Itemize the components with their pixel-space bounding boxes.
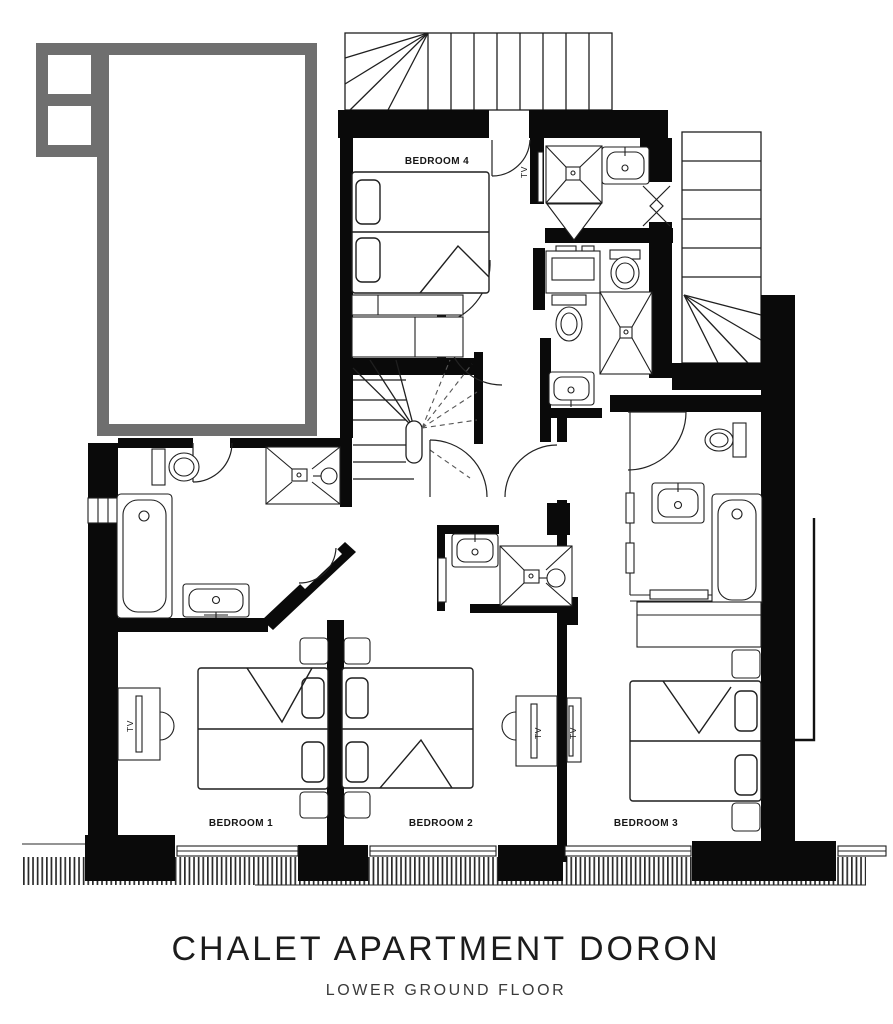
bathtub-icon-bath1 — [117, 494, 172, 618]
tv-label-bedroom2: TV — [533, 727, 543, 739]
tv-label-bedroom1: TV — [125, 720, 135, 732]
wardrobe-icon-bedroom3 — [637, 602, 761, 647]
tv-label-bedroom3: TV — [568, 727, 578, 739]
vanity-icon-roomB — [546, 246, 600, 293]
toilet-icon-roomB-second — [610, 250, 640, 289]
plan-subtitle: LOWER GROUND FLOOR — [326, 982, 567, 999]
washbasin-icon-ensuite4 — [602, 147, 649, 184]
washbasin-icon-bath3 — [652, 483, 704, 523]
shower-icon-roomB — [600, 292, 652, 374]
bed-double-bedroom4 — [352, 172, 489, 293]
bedroom1-label: BEDROOM 1 — [209, 818, 273, 829]
shower-icon-bath1 — [266, 447, 340, 504]
bed-double-bedroom1 — [198, 668, 328, 789]
washbasin-icon-central — [452, 534, 498, 567]
staircase-right-icon — [682, 132, 761, 363]
bed-double-bedroom3 — [630, 681, 761, 801]
shower-icon-central — [500, 546, 572, 606]
bedroom2-label: BEDROOM 2 — [409, 818, 473, 829]
washbasin-icon-roomB — [549, 372, 594, 407]
bedroom4-label: BEDROOM 4 — [405, 156, 469, 167]
bed-double-bedroom2 — [342, 668, 473, 788]
bedroom3-label: BEDROOM 3 — [614, 818, 678, 829]
bathtub-icon-bath3 — [712, 494, 762, 606]
bath-mat — [650, 590, 708, 599]
staircase-top-icon — [345, 33, 612, 110]
tv-label-bedroom4: TV — [519, 166, 529, 178]
tv-unit-bedroom4 — [538, 152, 543, 202]
plan-title: CHALET APARTMENT DORON — [171, 930, 720, 968]
floor-plan-canvas: BEDROOM 4 BEDROOM 1 BEDROOM 2 BEDROOM 3 … — [0, 0, 893, 1024]
washbasin-icon-bath1 — [183, 584, 249, 618]
bench-bedroom4 — [352, 295, 463, 357]
